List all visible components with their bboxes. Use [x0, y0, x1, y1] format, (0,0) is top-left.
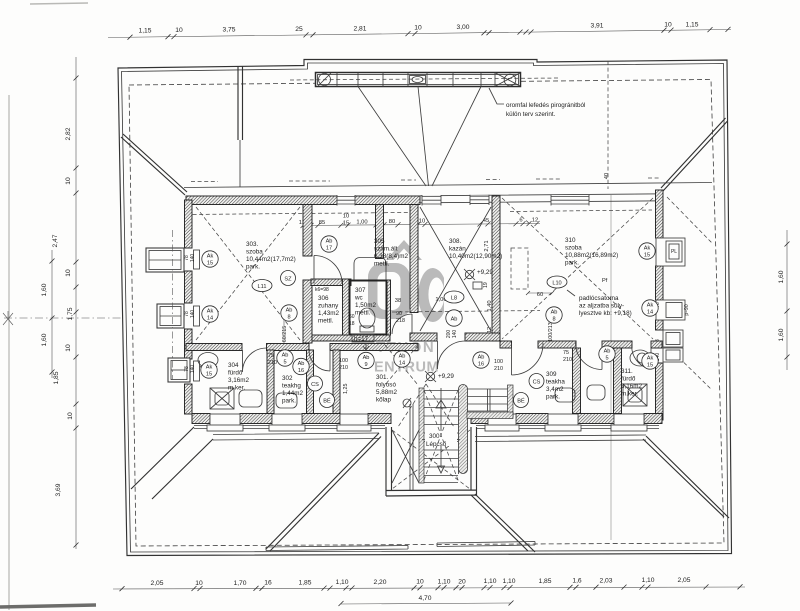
svg-text:15: 15 [647, 363, 653, 369]
svg-text:12: 12 [532, 218, 538, 224]
svg-text:210: 210 [339, 365, 348, 371]
svg-text:10: 10 [343, 214, 349, 220]
svg-text:10: 10 [65, 177, 72, 185]
svg-text:1,10: 1,10 [502, 578, 515, 585]
svg-text:10: 10 [416, 579, 424, 586]
svg-text:fürdő: fürdő [621, 376, 636, 383]
svg-text:1,85: 1,85 [298, 580, 311, 587]
svg-text:2,47: 2,47 [52, 234, 59, 247]
svg-text:teakha: teakha [546, 379, 565, 386]
svg-text:folyosó: folyosó [376, 382, 396, 389]
svg-text:6,38(8,4)m2: 6,38(8,4)m2 [374, 253, 408, 260]
svg-text:15: 15 [644, 253, 650, 259]
svg-text:h=17: h=17 [354, 336, 369, 343]
svg-text:17: 17 [326, 246, 332, 252]
svg-text:3,00: 3,00 [456, 24, 469, 31]
svg-text:311.: 311. [621, 368, 633, 375]
svg-text:L11: L11 [258, 284, 267, 290]
svg-text:Ab: Ab [326, 239, 333, 245]
svg-text:305: 305 [374, 238, 385, 245]
svg-text:1,60: 1,60 [778, 328, 785, 341]
svg-text:wc: wc [354, 295, 363, 302]
svg-text:mettl.: mettl. [355, 310, 371, 317]
svg-text:1,85: 1,85 [538, 578, 551, 585]
svg-text:Ak: Ak [644, 246, 651, 252]
svg-text:210: 210 [563, 357, 572, 363]
svg-text:Pf: Pf [602, 278, 608, 284]
svg-text:3,16m2: 3,16m2 [621, 383, 643, 390]
svg-text:Ab: Ab [282, 353, 289, 359]
svg-text:Ab: Ab [286, 308, 293, 314]
svg-text:2,81: 2,81 [353, 26, 366, 33]
svg-text:2,71: 2,71 [484, 240, 490, 251]
svg-text:307: 307 [355, 287, 366, 294]
svg-text:SZ: SZ [284, 277, 292, 283]
svg-text:2,03: 2,03 [599, 578, 612, 585]
svg-text:külön terv szerint.: külön terv szerint. [506, 111, 556, 118]
svg-text:teakhg: teakhg [282, 383, 301, 390]
svg-text:38: 38 [395, 298, 401, 304]
svg-text:Ak: Ak [207, 309, 214, 315]
svg-text:Ak: Ak [207, 254, 214, 260]
svg-text:k6=98: k6=98 [315, 287, 329, 293]
svg-text:1,6: 1,6 [572, 578, 582, 585]
svg-text:3,4m2: 3,4m2 [546, 386, 564, 393]
svg-text:80: 80 [389, 219, 395, 225]
svg-text:140: 140 [452, 330, 458, 339]
svg-text:15: 15 [206, 372, 212, 378]
svg-text:302: 302 [282, 375, 293, 382]
svg-text:1,15: 1,15 [685, 22, 698, 29]
svg-text:Ab: Ab [451, 317, 458, 323]
svg-text:2,20: 2,20 [373, 579, 386, 586]
svg-text:1,10: 1,10 [483, 578, 496, 585]
svg-text:90: 90 [396, 311, 402, 317]
svg-text:BÉ: BÉ [323, 398, 331, 405]
svg-text:10: 10 [67, 412, 74, 420]
svg-text:1,10: 1,10 [335, 579, 348, 586]
svg-text:100: 100 [339, 358, 348, 364]
svg-text:10,40m2(12,90m2): 10,40m2(12,90m2) [449, 253, 502, 260]
svg-text:Ab: Ab [478, 355, 485, 361]
svg-text:BÉ: BÉ [517, 398, 525, 405]
svg-text:210: 210 [268, 360, 277, 366]
svg-text:park.: park. [282, 398, 296, 405]
svg-text:2,05: 2,05 [150, 580, 163, 587]
svg-text:Ak: Ak [206, 365, 213, 371]
svg-text:fürdő: fürdő [228, 370, 243, 377]
svg-text:20: 20 [458, 579, 466, 586]
svg-text:1,50m2: 1,50m2 [355, 302, 377, 309]
svg-text:15: 15 [343, 221, 349, 227]
svg-text:PL: PL [671, 249, 677, 255]
svg-text:6: 6 [519, 218, 522, 224]
svg-text:Ab: Ab [298, 361, 305, 367]
svg-text:140: 140 [190, 365, 196, 374]
svg-text:14: 14 [207, 316, 213, 322]
svg-text:75: 75 [268, 353, 274, 359]
svg-text:19: 19 [483, 282, 489, 288]
svg-text:10: 10 [175, 27, 183, 34]
svg-text:1,10: 1,10 [437, 579, 450, 586]
svg-text:1,85: 1,85 [53, 371, 60, 384]
svg-text:10: 10 [65, 344, 72, 352]
svg-text:5: 5 [605, 356, 608, 362]
svg-text:10: 10 [65, 269, 72, 277]
svg-text:1,60: 1,60 [778, 270, 785, 283]
svg-text:m.ker.: m.ker. [621, 391, 638, 398]
svg-text:100/213: 100/213 [548, 322, 554, 342]
svg-text:10,88m2(16,89m2): 10,88m2(16,89m2) [565, 252, 618, 259]
svg-text:CS: CS [311, 382, 319, 388]
svg-text:zuhany: zuhany [318, 303, 339, 310]
svg-text:14: 14 [399, 361, 405, 367]
svg-text:1,60: 1,60 [41, 333, 48, 346]
svg-text:L8: L8 [451, 296, 457, 302]
svg-text:140: 140 [190, 310, 196, 319]
svg-text:16: 16 [264, 580, 272, 587]
svg-text:303.: 303. [246, 241, 259, 248]
svg-text:1,15: 1,15 [138, 28, 151, 35]
svg-text:40: 40 [604, 173, 610, 179]
svg-text:Ab: Ab [399, 354, 406, 360]
svg-text:100: 100 [494, 359, 503, 365]
svg-text:9: 9 [364, 362, 367, 368]
svg-text:16: 16 [478, 362, 484, 368]
svg-text:18: 18 [349, 321, 355, 327]
svg-text:Ab: Ab [604, 349, 611, 355]
svg-text:1,10: 1,10 [641, 577, 654, 584]
svg-text:2,05: 2,05 [677, 577, 690, 584]
svg-text:CS: CS [533, 380, 541, 386]
svg-text:14: 14 [647, 310, 653, 316]
svg-text:308.: 308. [449, 238, 462, 245]
svg-text:10: 10 [664, 22, 672, 29]
svg-text:8: 8 [287, 315, 290, 321]
svg-text:3,91: 3,91 [590, 23, 603, 30]
svg-text:1,00: 1,00 [356, 220, 367, 226]
svg-text:306: 306 [318, 295, 329, 302]
svg-text:8: 8 [552, 317, 555, 323]
svg-text:60/215: 60/215 [282, 326, 288, 343]
svg-text:3,16m2: 3,16m2 [228, 377, 250, 384]
svg-text:60: 60 [349, 314, 355, 320]
svg-text:1,43m2: 1,43m2 [318, 310, 340, 317]
svg-text:L10: L10 [552, 281, 561, 287]
svg-text:szoba: szoba [246, 249, 263, 256]
svg-text:10: 10 [419, 219, 425, 225]
svg-text:oromfal lefedés pirogránitból: oromfal lefedés pirogránitból [506, 102, 585, 109]
svg-text:1,75: 1,75 [67, 307, 74, 320]
svg-text:park.: park. [246, 264, 260, 271]
svg-text:218: 218 [396, 318, 405, 324]
svg-text:p=90: p=90 [684, 304, 690, 315]
svg-text:park.: park. [565, 260, 579, 267]
svg-text:+9,29: +9,29 [438, 373, 454, 380]
svg-text:304: 304 [228, 362, 239, 369]
svg-text:1,44m2: 1,44m2 [282, 390, 304, 397]
svg-text:mettl.: mettl. [318, 318, 334, 325]
svg-text:4,70: 4,70 [418, 595, 431, 602]
svg-text:5: 5 [283, 360, 286, 366]
svg-text:+9,29: +9,29 [477, 269, 493, 276]
svg-text:kazán: kazán [449, 246, 466, 253]
svg-text:309: 309 [546, 371, 557, 378]
svg-text:3,69: 3,69 [55, 483, 62, 496]
svg-text:park.: park. [546, 394, 560, 401]
svg-text:kőlap: kőlap [376, 397, 392, 404]
svg-text:m.ker.: m.ker. [228, 385, 245, 392]
svg-text:1,60: 1,60 [41, 283, 48, 296]
svg-text:2,82: 2,82 [65, 127, 72, 140]
svg-text:301.: 301. [376, 374, 389, 381]
svg-text:25: 25 [295, 26, 303, 33]
svg-text:1,25: 1,25 [343, 384, 349, 395]
svg-text:az aljzatba süly-: az aljzatba süly- [579, 303, 624, 310]
svg-text:szám.ált: szám.ált [374, 246, 398, 253]
svg-text:300: 300 [429, 433, 440, 440]
svg-text:140: 140 [190, 254, 196, 263]
svg-text:szoba: szoba [565, 245, 582, 252]
svg-text:10,44m2(17,7m2): 10,44m2(17,7m2) [246, 256, 296, 263]
svg-text:5,88m2: 5,88m2 [376, 389, 398, 396]
svg-text:75: 75 [563, 350, 569, 356]
svg-text:mettl.: mettl. [374, 261, 390, 268]
svg-text:310: 310 [565, 237, 576, 244]
svg-text:Ak: Ak [647, 356, 654, 362]
svg-text:10: 10 [414, 25, 422, 32]
svg-text:3,75: 3,75 [222, 27, 235, 34]
svg-text:16: 16 [298, 368, 304, 374]
svg-text:15: 15 [207, 261, 213, 267]
svg-text:Ab: Ab [551, 310, 558, 316]
svg-text:Ak: Ak [647, 303, 654, 309]
svg-text:Ab: Ab [363, 355, 370, 361]
svg-text:padlócsatorna: padlócsatorna [579, 295, 619, 302]
svg-text:210: 210 [494, 366, 503, 372]
svg-text:1,70: 1,70 [233, 580, 246, 587]
svg-text:lyesztve kb: +9,18): lyesztve kb: +9,18) [579, 310, 632, 317]
